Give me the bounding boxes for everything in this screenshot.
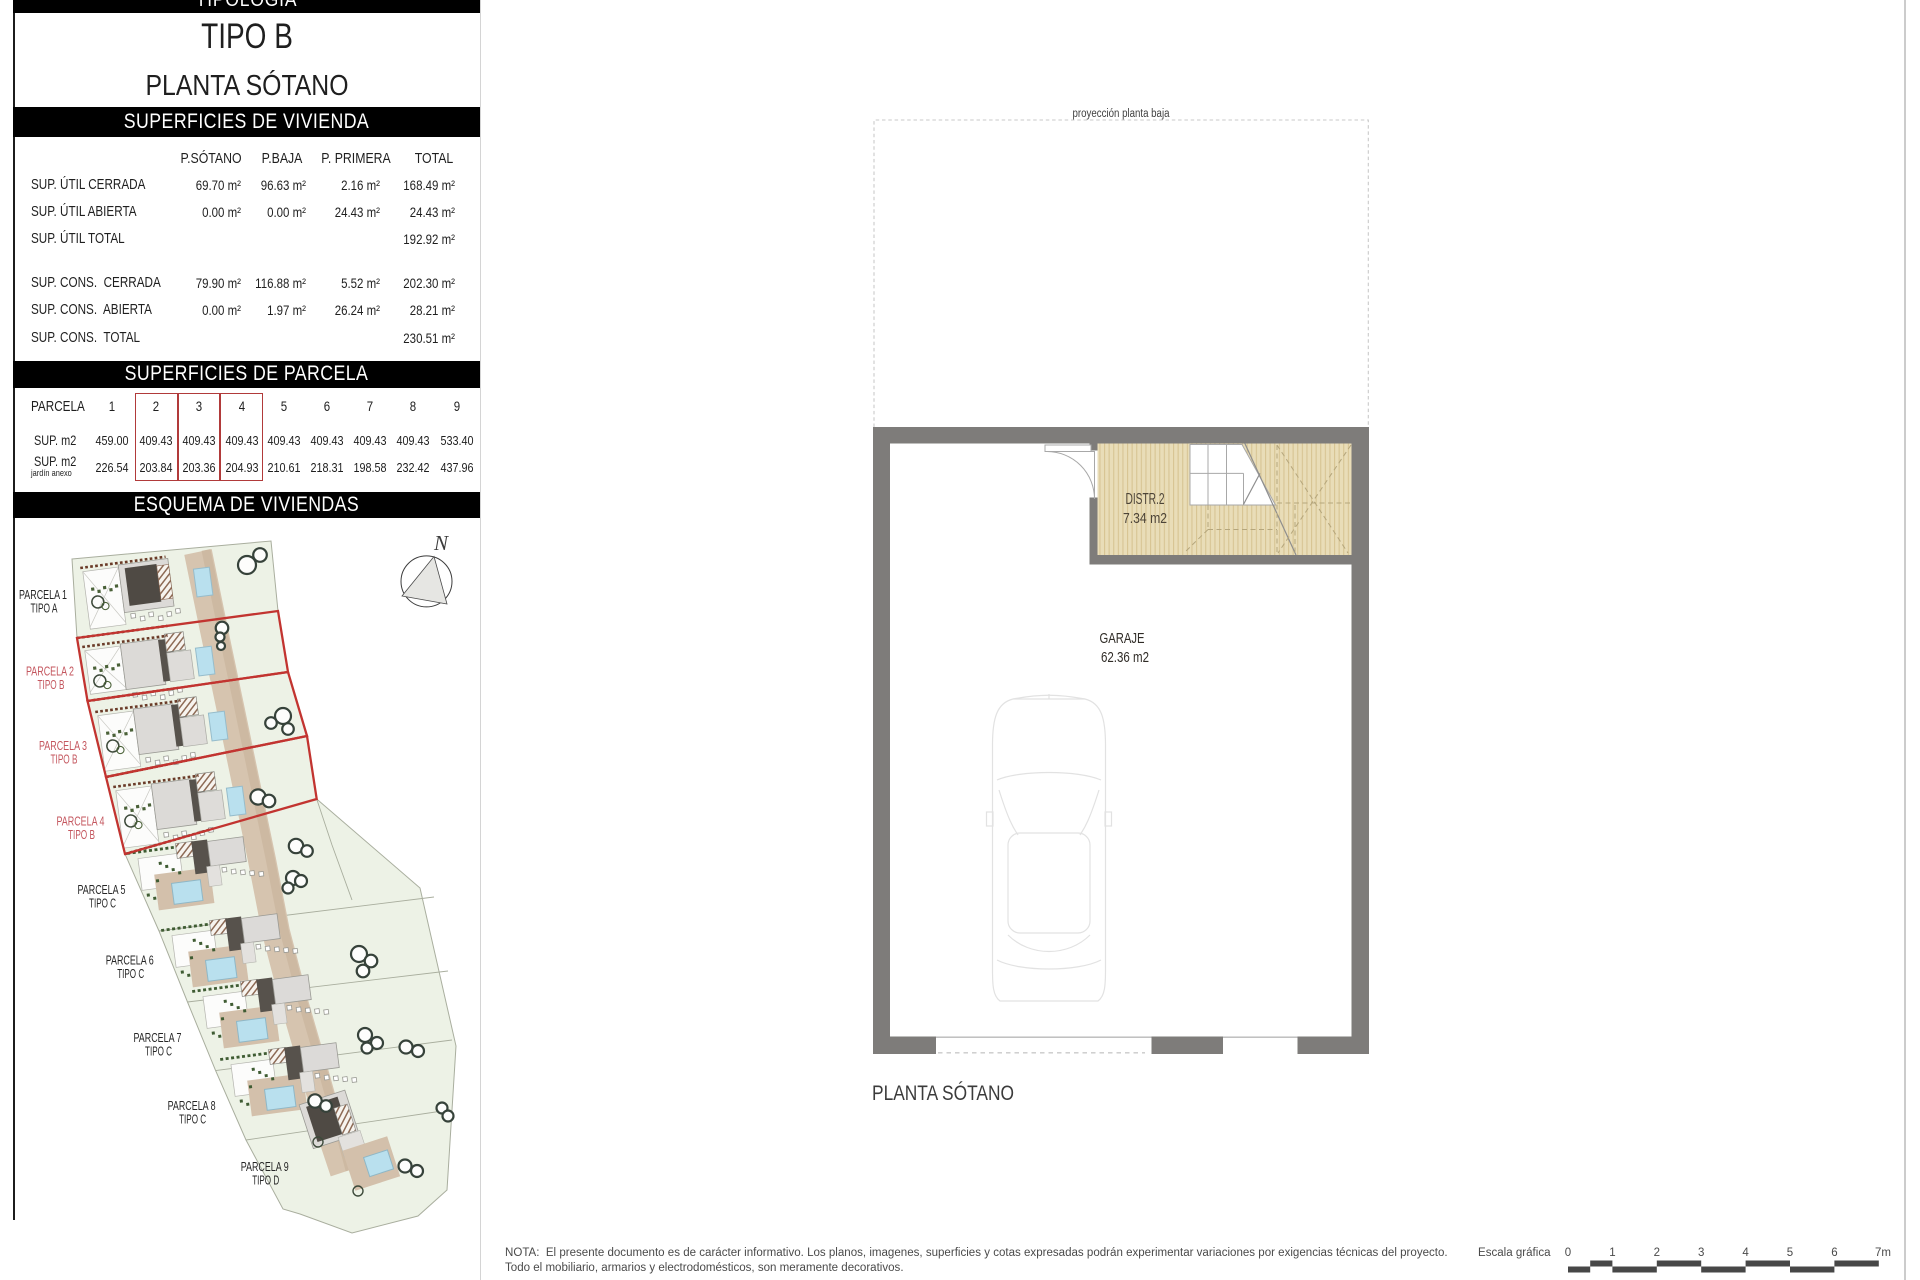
svg-text:proyección planta baja: proyección planta baja [1073, 108, 1170, 120]
svg-text:GARAJE: GARAJE [1100, 631, 1145, 647]
svg-text:5: 5 [1787, 1247, 1793, 1259]
svg-text:7.34 m2: 7.34 m2 [1123, 510, 1167, 527]
svg-text:2: 2 [1654, 1247, 1660, 1259]
svg-text:0: 0 [1565, 1247, 1571, 1259]
svg-text:PLANTA SÓTANO: PLANTA SÓTANO [872, 1080, 1014, 1105]
svg-text:4: 4 [1742, 1247, 1749, 1259]
svg-text:62.36 m2: 62.36 m2 [1101, 650, 1149, 666]
svg-text:3: 3 [1698, 1247, 1704, 1259]
svg-text:7m: 7m [1875, 1247, 1891, 1259]
svg-text:6: 6 [1831, 1247, 1837, 1259]
svg-text:1: 1 [1609, 1247, 1615, 1259]
svg-text:DISTR.2: DISTR.2 [1126, 491, 1165, 508]
